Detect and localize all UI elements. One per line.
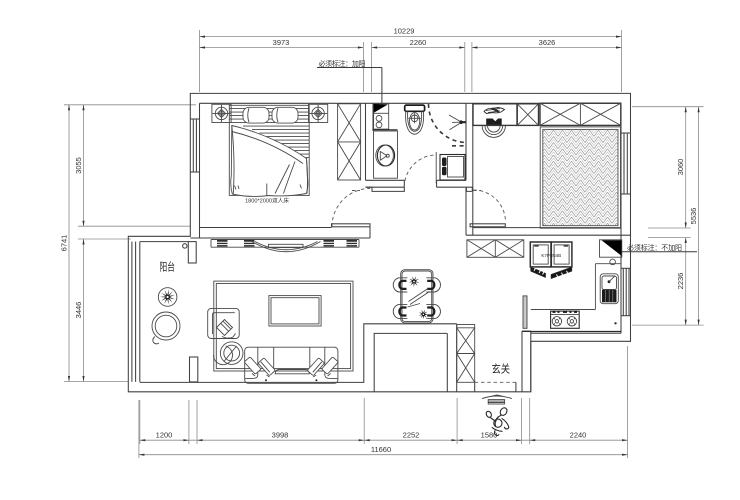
svg-text:3060: 3060	[676, 159, 685, 176]
svg-text:阳台: 阳台	[160, 260, 175, 274]
svg-text:3998: 3998	[272, 431, 289, 440]
svg-text:玄关: 玄关	[492, 362, 510, 376]
svg-text:3973: 3973	[273, 38, 290, 47]
svg-text:必须标注：不加阳: 必须标注：不加阳	[627, 243, 682, 252]
svg-text:10229: 10229	[394, 27, 415, 36]
svg-text:3626: 3626	[539, 38, 556, 47]
svg-text:6741: 6741	[60, 235, 69, 252]
svg-text:3055: 3055	[74, 157, 83, 174]
svg-text:1800*2000双人床: 1800*2000双人床	[245, 197, 289, 205]
svg-text:1200: 1200	[156, 431, 173, 440]
svg-text:3446: 3446	[74, 302, 83, 319]
svg-text:2252: 2252	[403, 431, 420, 440]
svg-text:必须标注：加阳: 必须标注：加阳	[319, 59, 366, 68]
svg-text:5536: 5536	[689, 208, 698, 225]
svg-text:2260: 2260	[410, 38, 427, 47]
svg-text:11660: 11660	[371, 445, 391, 454]
svg-text:2236: 2236	[676, 273, 685, 290]
svg-text:2240: 2240	[570, 431, 587, 440]
svg-text:K7P8N4B: K7P8N4B	[541, 253, 561, 258]
